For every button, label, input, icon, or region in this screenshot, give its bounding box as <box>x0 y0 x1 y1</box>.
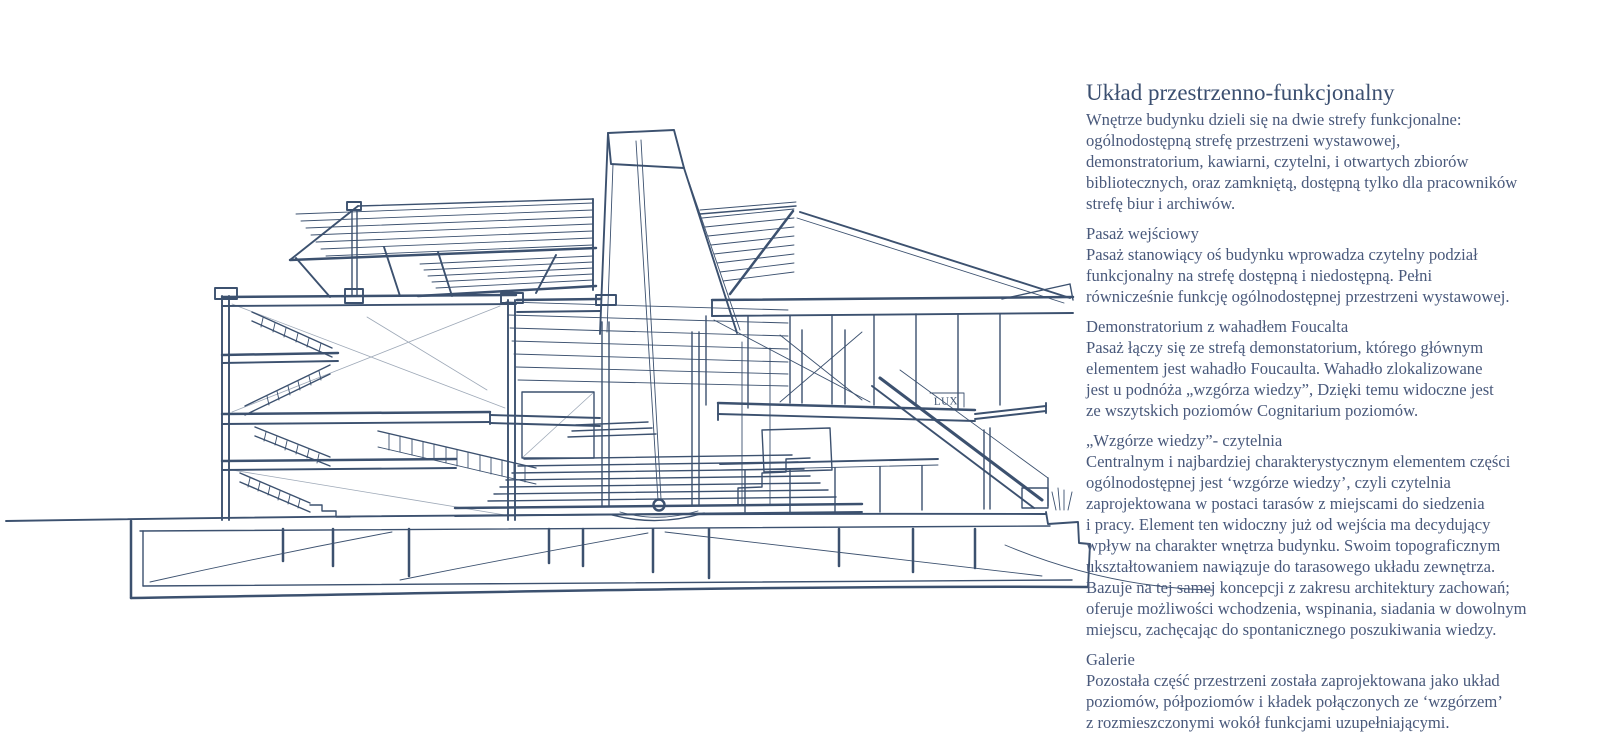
section-heading: „Wzgórze wiedzy”- czytelnia <box>1086 430 1554 451</box>
basement <box>131 512 1090 598</box>
reading-hill-terraces <box>455 422 862 516</box>
tower <box>600 130 740 334</box>
left-block <box>215 288 600 520</box>
section-demonstratorium: Demonstratorium z wahadłem Foucalta Pasa… <box>1086 316 1554 421</box>
page-title: Układ przestrzenno-funkcjonalny <box>1086 79 1554 106</box>
roof-canopy-right <box>700 202 1070 303</box>
section-galerie: Galerie Pozostała część przestrzeni zost… <box>1086 649 1554 733</box>
walkway-railing <box>378 431 536 484</box>
ramp <box>872 370 1072 510</box>
section-body: Centralnym i najbardziej charakterystycz… <box>1086 451 1554 640</box>
section-body: Pasaż stanowiący oś budynku wprowadza cz… <box>1086 244 1554 307</box>
section-wzgorze-wiedzy: „Wzgórze wiedzy”- czytelnia Centralnym i… <box>1086 430 1554 640</box>
section-heading: Pasaż wejściowy <box>1086 223 1554 244</box>
text-column: Układ przestrzenno-funkcjonalny Wnętrze … <box>1086 79 1554 733</box>
section-intro: Wnętrze budynku dzieli się na dwie stref… <box>1086 109 1554 214</box>
section-heading: Demonstratorium z wahadłem Foucalta <box>1086 316 1554 337</box>
section-heading: Galerie <box>1086 649 1554 670</box>
roof-canopies-left <box>290 199 596 297</box>
right-terrace <box>706 284 1073 408</box>
architectural-sketch: LUX <box>0 0 1240 733</box>
section-body: Wnętrze budynku dzieli się na dwie stref… <box>1086 109 1554 214</box>
section-pasaz-wejsciowy: Pasaż wejściowy Pasaż stanowiący oś budy… <box>1086 223 1554 307</box>
section-body: Pasaż łączy się ze strefą demonstatorium… <box>1086 337 1554 421</box>
mid-level-slab: LUX <box>718 393 1046 512</box>
section-body: Pozostała część przestrzeni została zapr… <box>1086 670 1554 733</box>
presentation-board: LUX <box>0 0 1600 733</box>
